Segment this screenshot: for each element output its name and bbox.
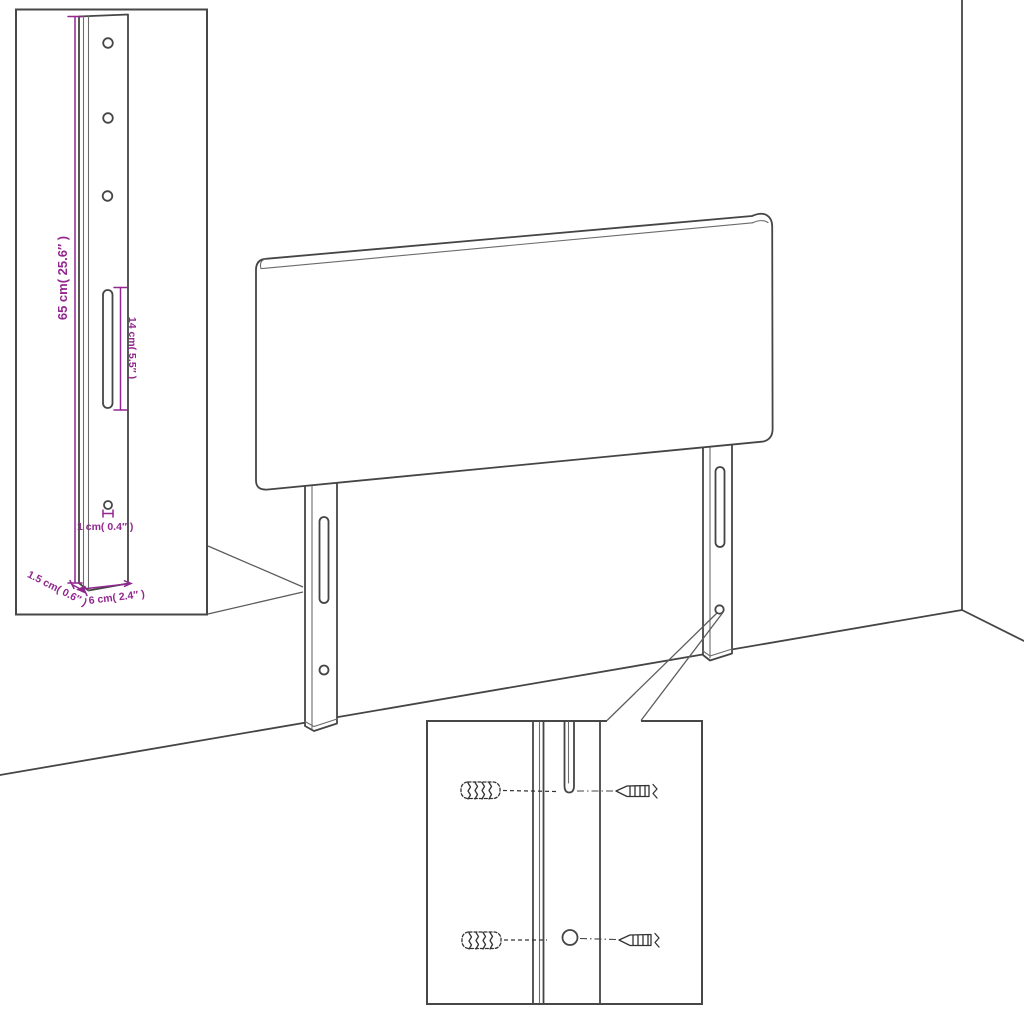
bracket-callout-lines: [208, 546, 303, 614]
floor-line-right: [962, 610, 1024, 641]
bracket-hole-3: [103, 191, 113, 201]
dim-label-14cm: 14 cm( 5.5″ ): [126, 317, 138, 379]
leg-right-hole: [715, 605, 723, 613]
bracket-callout-line-lower: [208, 592, 303, 614]
dim-label-1cm: 1 cm( 0.4″ ): [77, 521, 133, 533]
bracket-slot: [103, 290, 113, 408]
bracket-inset: 65 cm( 25.6″ ) 14 cm( 5.5″ ) 1 cm( 0.4″ …: [16, 10, 207, 615]
mount-inset: [427, 721, 702, 1004]
screw-callout-line-left: [607, 613, 717, 721]
diagram-canvas: 65 cm( 25.6″ ) 14 cm( 5.5″ ) 1 cm( 0.4″ …: [0, 0, 1024, 1024]
bracket-small-hole: [104, 501, 112, 509]
dim-label-65cm: 65 cm( 25.6″ ): [55, 236, 70, 320]
leg-left-hole: [320, 666, 329, 675]
screw-callout-line-right: [641, 613, 723, 721]
panel-face: [256, 214, 773, 490]
headboard-leg-left: [305, 462, 337, 731]
bracket-hole-1: [103, 38, 113, 48]
leg-right-slot: [716, 467, 725, 547]
headboard-panel: [256, 214, 773, 490]
headboard-drawing: [256, 214, 773, 731]
strip-hole: [563, 930, 578, 945]
bracket-callout-line-upper: [208, 546, 303, 587]
bracket-hole-2: [103, 113, 113, 123]
leg-left-slot: [320, 517, 329, 603]
product-diagram-headboard: 65 cm( 25.6″ ) 14 cm( 5.5″ ) 1 cm( 0.4″ …: [0, 0, 1024, 1024]
headboard-leg-right: [703, 433, 732, 661]
